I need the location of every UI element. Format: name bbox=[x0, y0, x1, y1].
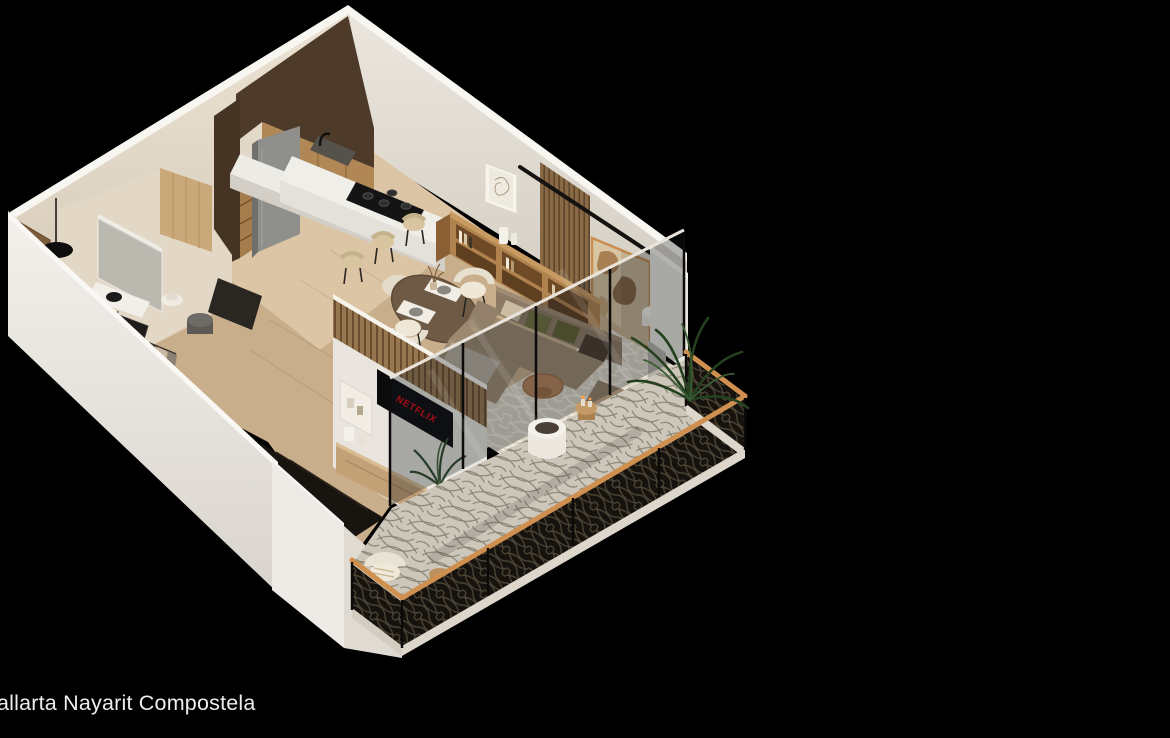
apartment-isometric-render: NETFLIX bbox=[0, 0, 1170, 738]
white-planter bbox=[528, 418, 566, 459]
candle-flame bbox=[581, 395, 584, 398]
small-frame bbox=[344, 427, 354, 441]
candle-flame bbox=[589, 398, 592, 401]
caption-text: allarta Nayarit Compostela bbox=[0, 691, 256, 716]
hat-box bbox=[187, 313, 213, 334]
floorplan-render-stage: NETFLIX bbox=[0, 0, 1170, 738]
black-basin bbox=[106, 292, 122, 302]
small-frame bbox=[357, 434, 365, 445]
